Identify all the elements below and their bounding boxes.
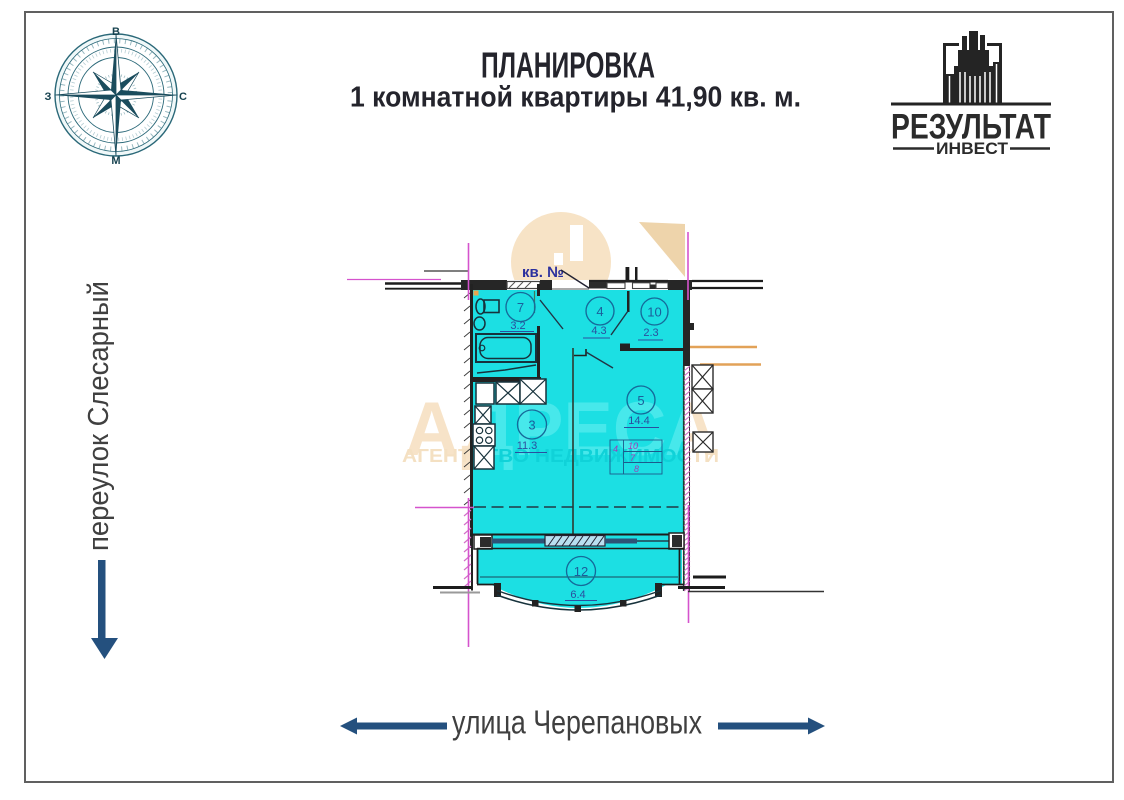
svg-text:6.4: 6.4 — [570, 589, 585, 601]
svg-text:М: М — [111, 155, 120, 167]
svg-text:3: 3 — [528, 418, 535, 433]
svg-text:3.2: 3.2 — [510, 320, 525, 332]
svg-text:4: 4 — [596, 304, 603, 319]
svg-text:ПЛАНИРОВКА: ПЛАНИРОВКА — [481, 45, 655, 86]
svg-text:4: 4 — [613, 444, 618, 454]
svg-text:8: 8 — [634, 464, 639, 474]
svg-text:7: 7 — [517, 300, 524, 315]
svg-text:С: С — [179, 91, 187, 103]
svg-text:переулок Слесарный: переулок Слесарный — [83, 281, 115, 551]
svg-text:1 комнатной квартиры 41,90 кв.: 1 комнатной квартиры 41,90 кв. м. — [350, 81, 801, 113]
svg-text:улица Черепановых: улица Черепановых — [452, 704, 702, 741]
svg-text:12: 12 — [574, 564, 588, 579]
svg-text:11.3: 11.3 — [517, 440, 538, 452]
svg-text:кв. №: кв. № — [522, 264, 564, 281]
svg-text:2.3: 2.3 — [643, 327, 658, 339]
svg-text:5: 5 — [637, 393, 644, 408]
svg-text:10: 10 — [628, 441, 638, 451]
svg-text:В: В — [112, 26, 120, 38]
svg-text:4.3: 4.3 — [591, 325, 606, 337]
svg-text:ИНВЕСТ: ИНВЕСТ — [936, 139, 1009, 158]
svg-text:14.4: 14.4 — [628, 415, 649, 427]
svg-text:10: 10 — [647, 305, 661, 320]
svg-text:З: З — [45, 91, 52, 103]
